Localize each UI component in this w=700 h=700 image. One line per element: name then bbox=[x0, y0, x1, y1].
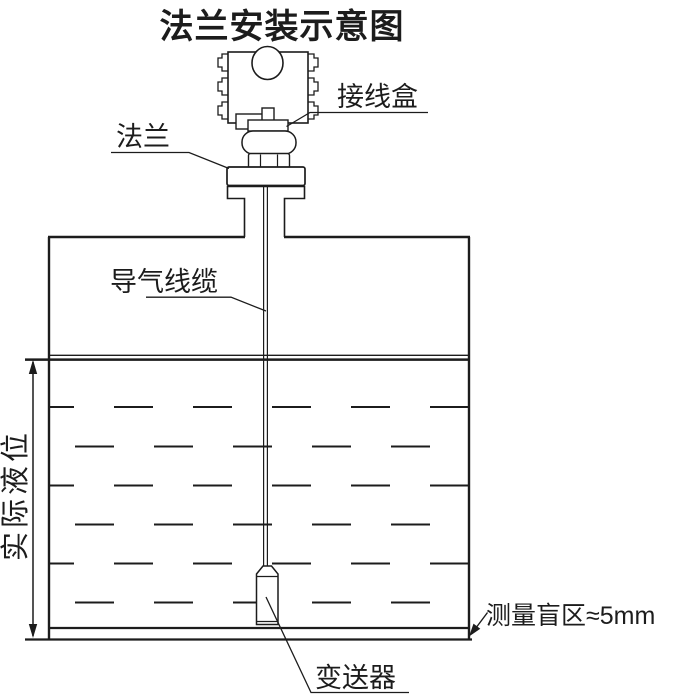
ball-joint bbox=[242, 131, 296, 154]
transmitter-label: 变送器 bbox=[315, 663, 396, 693]
air-cable-label: 导气线缆 bbox=[110, 267, 218, 297]
blind-zone-arrowhead bbox=[469, 624, 480, 637]
housing-top-dome bbox=[252, 47, 283, 80]
neck-step bbox=[248, 120, 288, 131]
air-cable-leader bbox=[146, 297, 266, 311]
tank-outline bbox=[25, 237, 472, 640]
junction-box-label: 接线盒 bbox=[337, 82, 418, 112]
air-guide-cable bbox=[264, 186, 268, 566]
blind-zone-label: 测量盲区≈5mm bbox=[486, 602, 655, 630]
housing-left-ribs bbox=[218, 54, 228, 119]
flange-label: 法兰 bbox=[116, 122, 170, 152]
diagram-title: 法兰安装示意图 bbox=[160, 8, 405, 46]
dimension-arrowhead-up bbox=[29, 360, 37, 374]
actual-level-label: 实际液位 bbox=[0, 429, 32, 561]
dimension-arrowhead-down bbox=[29, 624, 37, 638]
leader-lines bbox=[111, 113, 488, 693]
liquid bbox=[25, 355, 468, 602]
flange-leader bbox=[111, 153, 229, 169]
diagram-canvas: 法兰安装示意图 接线盒 法兰 导气线缆 实际液位 变送器 测量盲区≈5mm bbox=[0, 0, 700, 700]
flange-installation-diagram: 法兰安装示意图 接线盒 法兰 导气线缆 实际液位 变送器 测量盲区≈5mm bbox=[0, 0, 700, 700]
nozzle-neck bbox=[228, 187, 305, 238]
housing-right-ribs bbox=[308, 54, 318, 119]
flange-plate bbox=[227, 167, 305, 186]
